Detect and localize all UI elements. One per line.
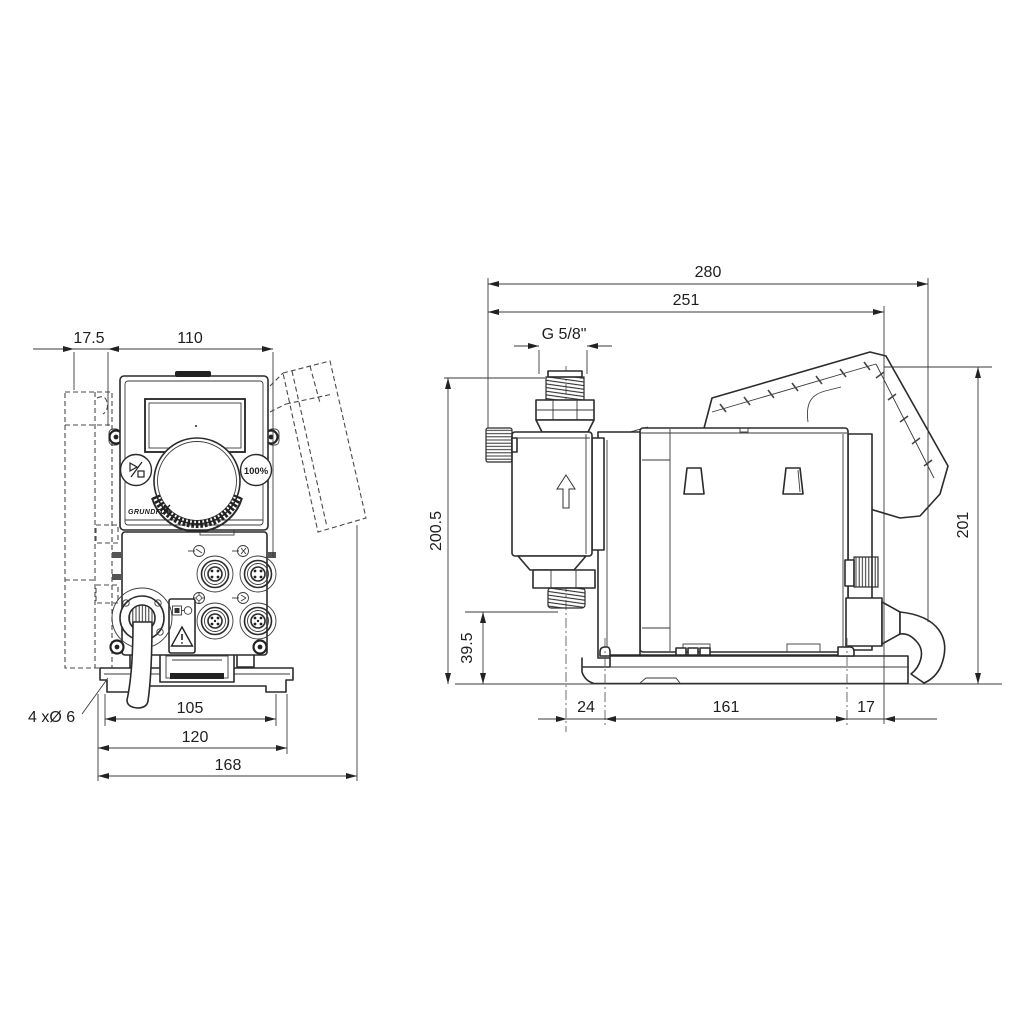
cable-gland: [846, 598, 882, 646]
mounting-holes-note: 4 xØ 6: [28, 709, 75, 726]
dim-foot-front-offset: 24: [577, 699, 595, 716]
discharge-thread: [546, 377, 584, 400]
dim-height-to-connection: 200.5: [428, 511, 445, 551]
dim-depth-to-plate: 251: [673, 292, 700, 309]
dim-foot-spacing: 161: [713, 699, 740, 716]
suction-union-nut: [533, 570, 595, 588]
suction-thread: [548, 588, 585, 608]
dim-valve-clearance: 39.5: [459, 632, 476, 663]
control-panel: 100% GRUNDFOS: [120, 371, 272, 531]
screw-icon: [254, 641, 267, 654]
cover-tab: [175, 371, 211, 377]
dim-bracket-offset: 17.5: [73, 330, 104, 347]
dim-connection-thread: G 5/8": [542, 326, 587, 343]
dosing-pump-dimensional-drawing: 100% GRUNDFOS: [0, 0, 1024, 1024]
pump-head-body: [512, 432, 592, 556]
side-view: 280 251 G 5/8" 200.5 39.5: [428, 264, 1002, 732]
dim-hole-spacing: 105: [177, 700, 204, 717]
threaded-stud: [854, 557, 878, 587]
motor-housing: [640, 428, 872, 652]
capacity-100-button: 100%: [241, 455, 272, 486]
dim-overall-width: 168: [215, 757, 242, 774]
screw-icon: [111, 641, 124, 654]
mounting-plate-hidden: [270, 361, 366, 532]
dim-housing-width: 110: [177, 330, 203, 347]
dim-plate-width: 120: [182, 729, 209, 746]
dim-foot-rear-offset: 17: [857, 699, 875, 716]
housing-hook: [684, 468, 704, 494]
air-vent-knob: [486, 428, 512, 462]
technical-drawing: 100% GRUNDFOS: [0, 0, 1024, 1024]
start-stop-button: [121, 455, 152, 486]
dim-overall-height: 201: [955, 512, 972, 539]
front-view: 100% GRUNDFOS: [28, 330, 366, 781]
capacity-100-label: 100%: [244, 466, 269, 477]
warning-label: [169, 599, 195, 653]
dim-overall-depth: 280: [695, 264, 722, 281]
